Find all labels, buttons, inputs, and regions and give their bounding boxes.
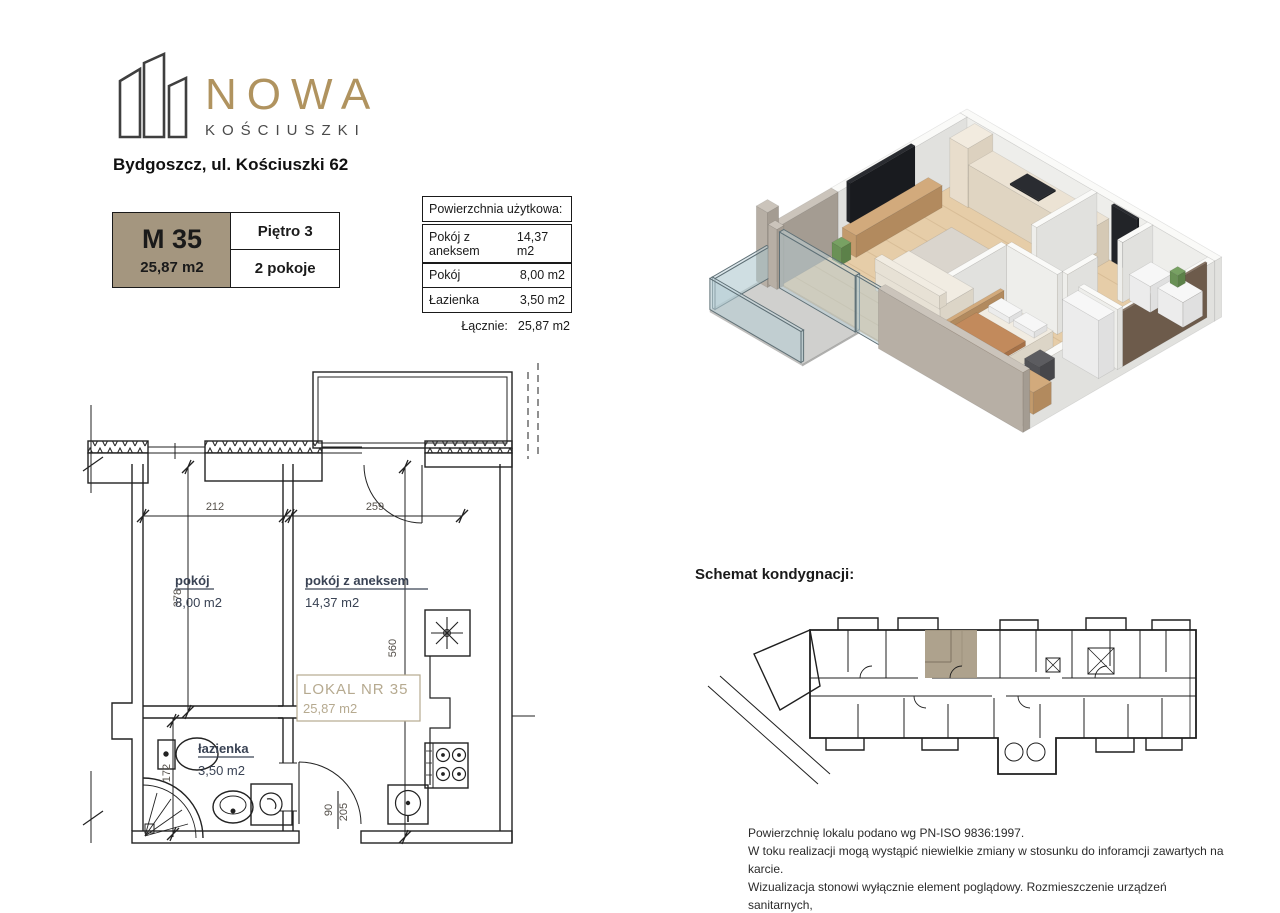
row-value: 3,50 m2 [520, 293, 565, 307]
disclaimer-line: Wizualizacja stonowi wyłącznie element p… [748, 878, 1228, 913]
unit-info-card: M 35 25,87 m2 Piętro 3 2 pokoje [112, 212, 340, 288]
room3-name: łazienka [198, 741, 249, 756]
unit-card-page: NOWA KOŚCIUSZKI Bydgoszcz, ul. Kościuszk… [0, 0, 1280, 913]
dim-width-right: 259 [366, 501, 384, 513]
buildings-icon [113, 48, 195, 144]
row-value: 8,00 m2 [520, 268, 565, 282]
room2-name: pokój z aneksem [305, 573, 409, 588]
table-row: Pokój z aneksem 14,37 m2 [422, 224, 572, 264]
table-total: Łącznie: 25,87 m2 [422, 313, 572, 339]
dim-bathroom: 172 [161, 764, 173, 782]
area-table-title: Powierzchnia użytkowa: [422, 196, 572, 222]
unit-id-cell: M 35 25,87 m2 [112, 212, 232, 288]
apartment-3d-visualization [695, 62, 1235, 502]
address: Bydgoszcz, ul. Kościuszki 62 [113, 155, 348, 175]
dim-door-height: 205 [338, 803, 350, 821]
disclaimer-line: W toku realizacji mogą wystąpić niewielk… [748, 842, 1228, 878]
unit-area: 25,87 m2 [140, 259, 203, 276]
room2-area: 14,37 m2 [305, 595, 359, 610]
total-value: 25,87 m2 [518, 319, 570, 333]
brand-subname: KOŚCIUSZKI [205, 122, 380, 139]
lokal-area: 25,87 m2 [303, 701, 357, 716]
unit-number: M 35 [142, 224, 202, 255]
table-row: Pokój 8,00 m2 [422, 262, 572, 288]
schematic-title: Schemat kondygnacji: [695, 566, 854, 583]
row-label: Pokój z aneksem [429, 230, 517, 258]
room1-name: pokój [175, 573, 210, 588]
brand-name: NOWA [205, 70, 380, 120]
row-value: 14,37 m2 [517, 230, 565, 258]
table-row: Łazienka 3,50 m2 [422, 287, 572, 313]
room1-area: 8,00 m2 [175, 595, 222, 610]
unit-rooms: 2 pokoje [230, 249, 340, 288]
dim-height-right: 560 [387, 639, 399, 657]
row-label: Łazienka [429, 293, 479, 307]
floor-plan: 212 259 378 560 172 90 205 pokój 8,00 m2… [75, 363, 545, 883]
dim-door-width: 90 [323, 804, 335, 816]
disclaimer-line: Powierzchnię lokalu podano wg PN-ISO 983… [748, 824, 1228, 842]
logo: NOWA KOŚCIUSZKI [113, 48, 380, 144]
floor-schematic [700, 588, 1215, 793]
total-label: Łącznie: [461, 319, 508, 333]
lokal-number: LOKAL NR 35 [303, 681, 409, 698]
dim-width-left: 212 [206, 501, 224, 513]
disclaimer: Powierzchnię lokalu podano wg PN-ISO 983… [748, 824, 1228, 913]
unit-floor: Piętro 3 [230, 212, 340, 251]
room3-area: 3,50 m2 [198, 763, 245, 778]
row-label: Pokój [429, 268, 460, 282]
area-table: Powierzchnia użytkowa: Pokój z aneksem 1… [422, 196, 572, 339]
